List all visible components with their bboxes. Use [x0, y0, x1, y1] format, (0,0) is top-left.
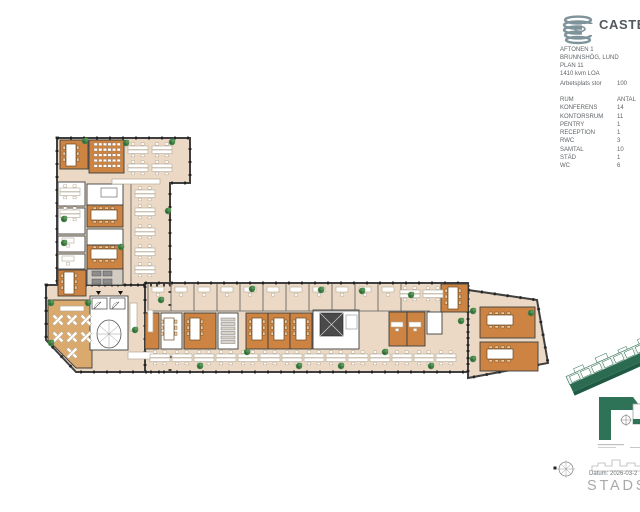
page: CASTEL AFTONEN 1BRUNNSHÖG, LUNDPLAN 1114… — [0, 0, 640, 512]
elevator-icon — [92, 298, 107, 309]
project-info-line: 1410 kvm LOA — [560, 70, 640, 78]
room-table-row: RWC3 — [560, 137, 640, 145]
workplace-label: Arbetsplats stor — [560, 80, 617, 88]
floorplan-svg — [0, 0, 640, 512]
section-icon — [630, 404, 640, 448]
plant-icon — [458, 318, 464, 324]
plant-icon — [359, 288, 365, 294]
logo-wordmark: CASTEL — [599, 17, 640, 32]
room-count: 1 — [617, 154, 620, 162]
room-count: 14 — [617, 104, 624, 112]
room-table-row: PENTRY1 — [560, 121, 640, 129]
plant-icon — [61, 216, 67, 222]
room-count: 11 — [617, 113, 623, 121]
elevator-icon — [110, 298, 125, 309]
plant-icon — [158, 297, 164, 303]
room-count: 3 — [617, 137, 620, 145]
plant-icon — [528, 310, 534, 316]
axonometric-building — [564, 332, 640, 396]
project-info-line: AFTONEN 1 — [560, 46, 640, 54]
room-name: WC — [560, 162, 617, 170]
room-table-row: STÄD1 — [560, 154, 640, 162]
plant-icon — [132, 327, 138, 333]
room-table-row: SAMTAL10 — [560, 146, 640, 154]
plant-icon — [85, 300, 91, 306]
plant-icon — [165, 208, 171, 214]
room-table-header: RUM ANTAL — [560, 96, 640, 104]
plant-icon — [470, 356, 476, 362]
room-name: RECEPTION — [560, 129, 617, 137]
plant-icon — [296, 363, 302, 369]
plant-icon — [48, 340, 54, 346]
project-info: AFTONEN 1BRUNNSHÖG, LUNDPLAN 111410 kvm … — [560, 46, 640, 88]
workplace-value: 100 — [617, 80, 627, 88]
project-info-line: BRUNNSHÖG, LUND — [560, 54, 640, 62]
room-table-row: WC6 — [560, 162, 640, 170]
room-name: SAMTAL — [560, 146, 617, 154]
plant-icon — [382, 349, 388, 355]
stair-landing — [346, 315, 357, 329]
room-table-row: KONFERENS14 — [560, 104, 640, 112]
room-count: 10 — [617, 146, 624, 154]
count-col-header: ANTAL — [617, 96, 636, 104]
room-name: KONTORSRUM — [560, 113, 617, 121]
room-count: 1 — [617, 129, 620, 137]
plant-icon — [428, 363, 434, 369]
plant-icon — [197, 363, 203, 369]
north-arrow-icon — [554, 460, 576, 478]
plant-icon — [169, 139, 175, 145]
plant-icon — [249, 286, 255, 292]
plant-icon — [123, 140, 129, 146]
plant-icon — [118, 244, 124, 250]
plant-icon — [470, 308, 476, 314]
plant-icon — [61, 240, 67, 246]
workplace-row: Arbetsplats stor 100 — [560, 80, 640, 88]
plant-icon — [48, 300, 54, 306]
room-col-header: RUM — [560, 96, 617, 104]
date-label: Datum: 2026-03-2 — [589, 471, 637, 477]
room-count: 1 — [617, 121, 620, 129]
room-table-body: KONFERENS14KONTORSRUM11PENTRY1RECEPTION1… — [560, 104, 640, 170]
room-table-row: KONTORSRUM11 — [560, 113, 640, 121]
project-info-lines: AFTONEN 1BRUNNSHÖG, LUNDPLAN 111410 kvm … — [560, 46, 640, 78]
floorplan-generated — [46, 138, 548, 378]
room-table: RUM ANTAL KONFERENS14KONTORSRUM11PENTRY1… — [560, 96, 640, 171]
room-name: STÄD — [560, 154, 617, 162]
room-name: KONFERENS — [560, 104, 617, 112]
room-count: 6 — [617, 162, 620, 170]
desk-furniture — [101, 188, 117, 197]
plant-icon — [82, 138, 88, 144]
plant-icon — [244, 349, 250, 355]
watermark: STADSTU — [587, 478, 640, 494]
room-table-row: RECEPTION1 — [560, 129, 640, 137]
project-info-line: PLAN 11 — [560, 62, 640, 70]
plant-icon — [408, 292, 414, 298]
castellum-logo-icon — [564, 17, 598, 43]
footprint-outline-icon — [592, 460, 640, 471]
room-name: PENTRY — [560, 121, 617, 129]
plant-icon — [338, 363, 344, 369]
plant-icon — [318, 287, 324, 293]
room-name: RWC — [560, 137, 617, 145]
